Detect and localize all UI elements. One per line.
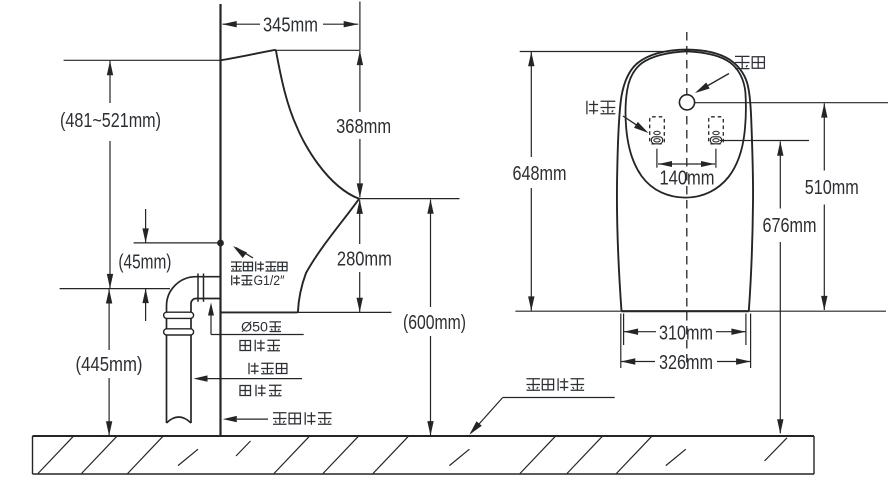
svg-text:(45mm): (45mm) <box>118 252 171 274</box>
svg-text:345mm: 345mm <box>263 14 318 36</box>
svg-text:676mm: 676mm <box>763 215 817 237</box>
svg-text:140mm: 140mm <box>660 168 715 190</box>
svg-text:(445mm): (445mm) <box>76 354 143 376</box>
svg-text:(600mm): (600mm) <box>403 312 466 334</box>
svg-text:648mm: 648mm <box>513 163 567 185</box>
svg-text:310mm: 310mm <box>659 322 713 344</box>
svg-text:Ø50: Ø50 <box>241 320 268 335</box>
svg-text:(481~521mm): (481~521mm) <box>60 110 161 132</box>
svg-text:368mm: 368mm <box>336 116 391 138</box>
svg-text:510mm: 510mm <box>805 177 859 199</box>
svg-text:280mm: 280mm <box>337 249 392 271</box>
svg-text:G1/2″: G1/2″ <box>254 273 285 288</box>
svg-text:326mm: 326mm <box>659 352 713 374</box>
